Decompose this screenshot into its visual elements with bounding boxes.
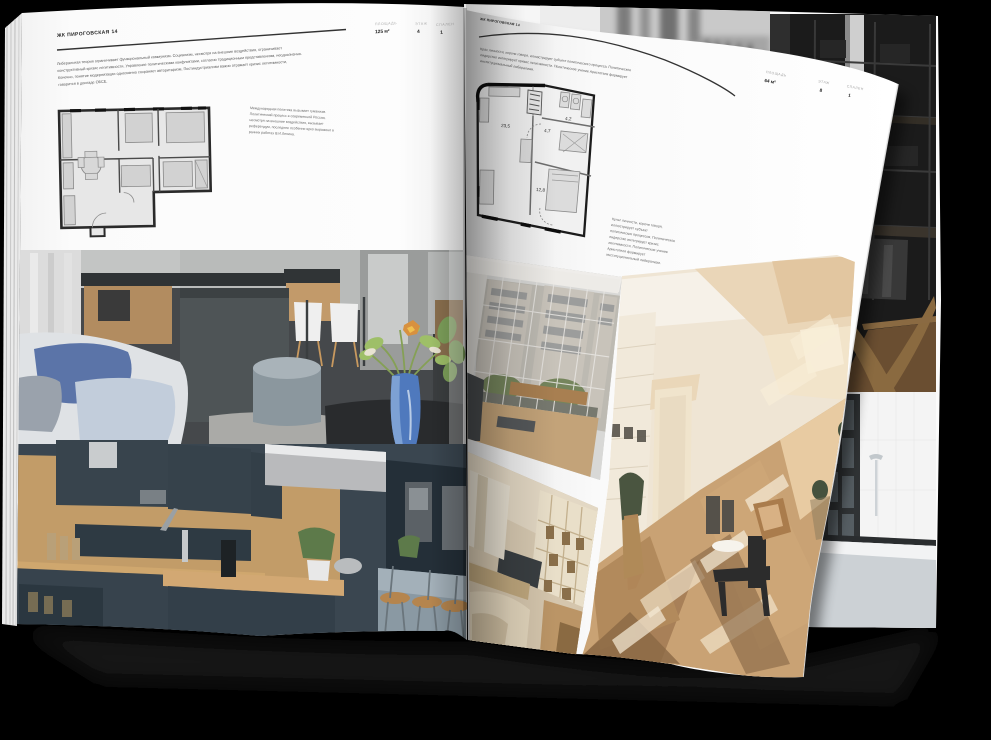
svg-text:125 м²: 125 м² bbox=[375, 28, 390, 35]
svg-text:4,2: 4,2 bbox=[565, 116, 572, 121]
svg-text:ЭТАЖ: ЭТАЖ bbox=[415, 22, 428, 27]
